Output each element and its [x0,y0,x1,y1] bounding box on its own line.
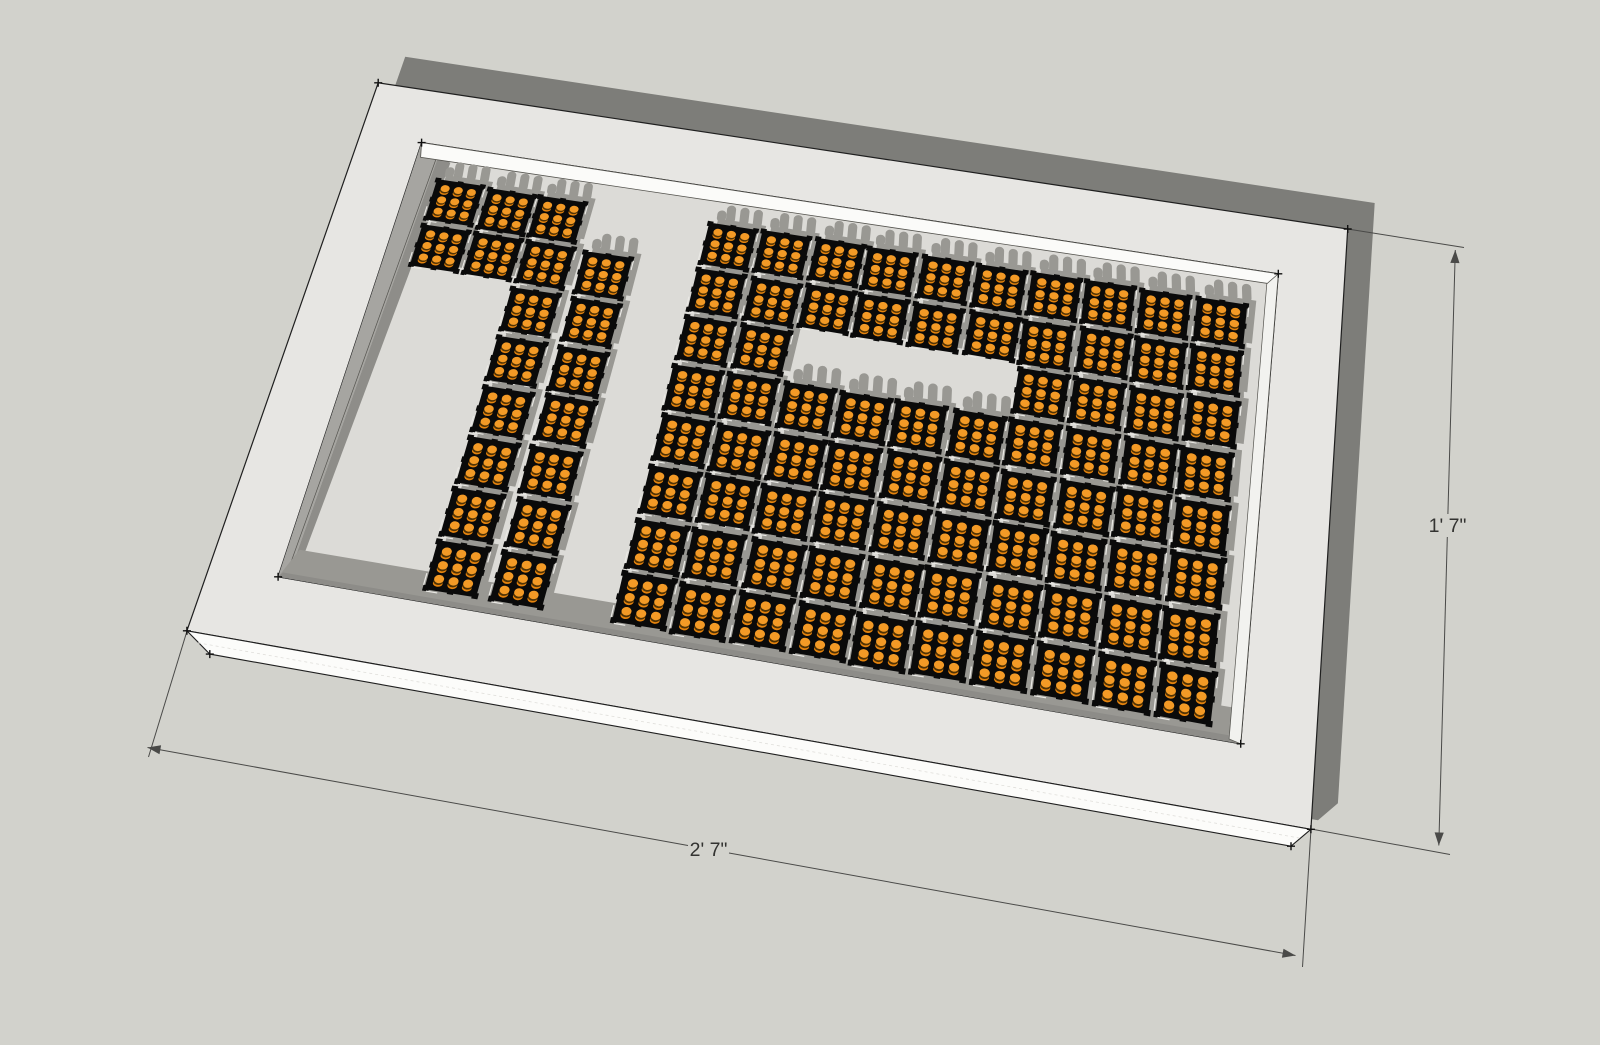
svg-text:2' 7": 2' 7" [690,839,728,861]
svg-text:1' 7": 1' 7" [1429,515,1467,537]
